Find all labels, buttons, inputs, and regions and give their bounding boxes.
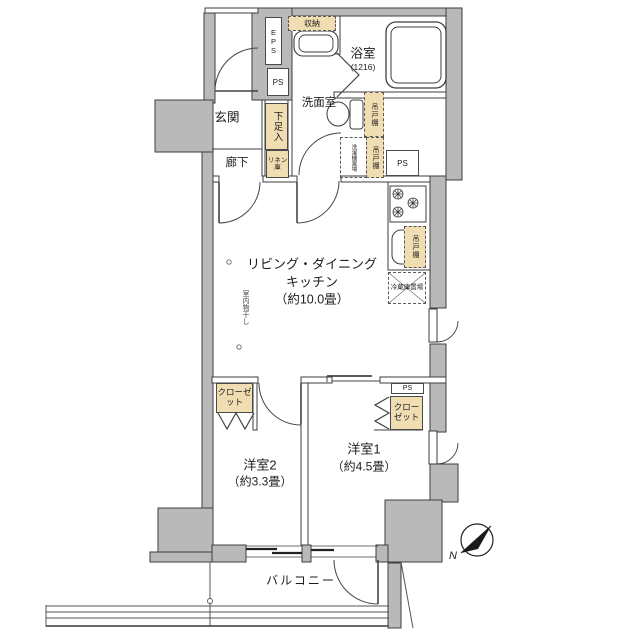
closet2-folding-door [218,413,254,429]
bedroom1-casement-window [429,431,458,464]
label-entrance: 玄関 [214,107,239,126]
closet-bedroom1: クローゼット [390,396,423,430]
label-ldk-line1: リビング・ダイニング [247,254,377,273]
bedroom1-sliding-door [327,376,380,382]
label-bedroom1-size: （約4.5畳） [332,458,397,475]
label-ldk-size: （約10.0畳） [275,289,349,308]
ldk-casement-window [429,309,458,342]
bedroom1-sliding-window [311,546,378,557]
label-balcony: バルコニー [266,572,336,589]
label-bathroom-size: (1216) [351,62,376,72]
compass-icon [461,524,493,556]
balcony-door [334,560,378,604]
storage-shelf: 収納 [288,16,336,31]
bathtub [386,22,446,88]
washroom-ldk-door [297,181,339,223]
balcony-graphics [46,562,413,628]
label-hallway: 廊下 [226,154,249,170]
hallway-ldk-door [219,182,260,223]
bedroom2-door [259,383,301,425]
washer-space: 洗濯機置場 [340,137,367,178]
ps-shaft-1: PS [267,68,289,96]
ps-shaft-2: PS [386,150,419,176]
label-indoor-drying: 室内物干し [239,278,251,336]
hanging-cabinet-2: 吊戸棚 [366,137,384,178]
closet-bedroom2: クローゼット [216,383,253,413]
label-washroom: 洗面室 [302,94,337,110]
floor-plan: 下足入 リネン庫 収納 吊戸棚 吊戸棚 洗濯機置場 吊戸棚 冷蔵庫置場 クローゼ… [0,0,640,640]
label-bedroom2: 洋室2 [243,455,276,474]
label-compass-north: N [449,550,457,562]
balcony-right-edge [401,562,413,628]
shoe-cabinet: 下足入 [265,103,288,150]
hanging-cabinet-3: 吊戸棚 [404,226,426,268]
bedroom2-sliding-window [246,546,302,557]
closet1-folding-door [375,397,389,429]
linen-closet: リネン庫 [266,150,289,178]
label-bathroom: 浴室 [350,43,375,62]
label-bedroom2-size: （約3.3畳） [228,473,293,490]
hanging-cabinet-1: 吊戸棚 [364,92,384,137]
washroom-inner-door [299,133,341,175]
vanity [294,31,338,56]
fridge-space: 冷蔵庫置場 [388,272,426,304]
label-bedroom1: 洋室1 [347,439,380,458]
ps-shaft-3: PS [391,383,424,394]
eps-shaft: EPS [265,17,282,65]
